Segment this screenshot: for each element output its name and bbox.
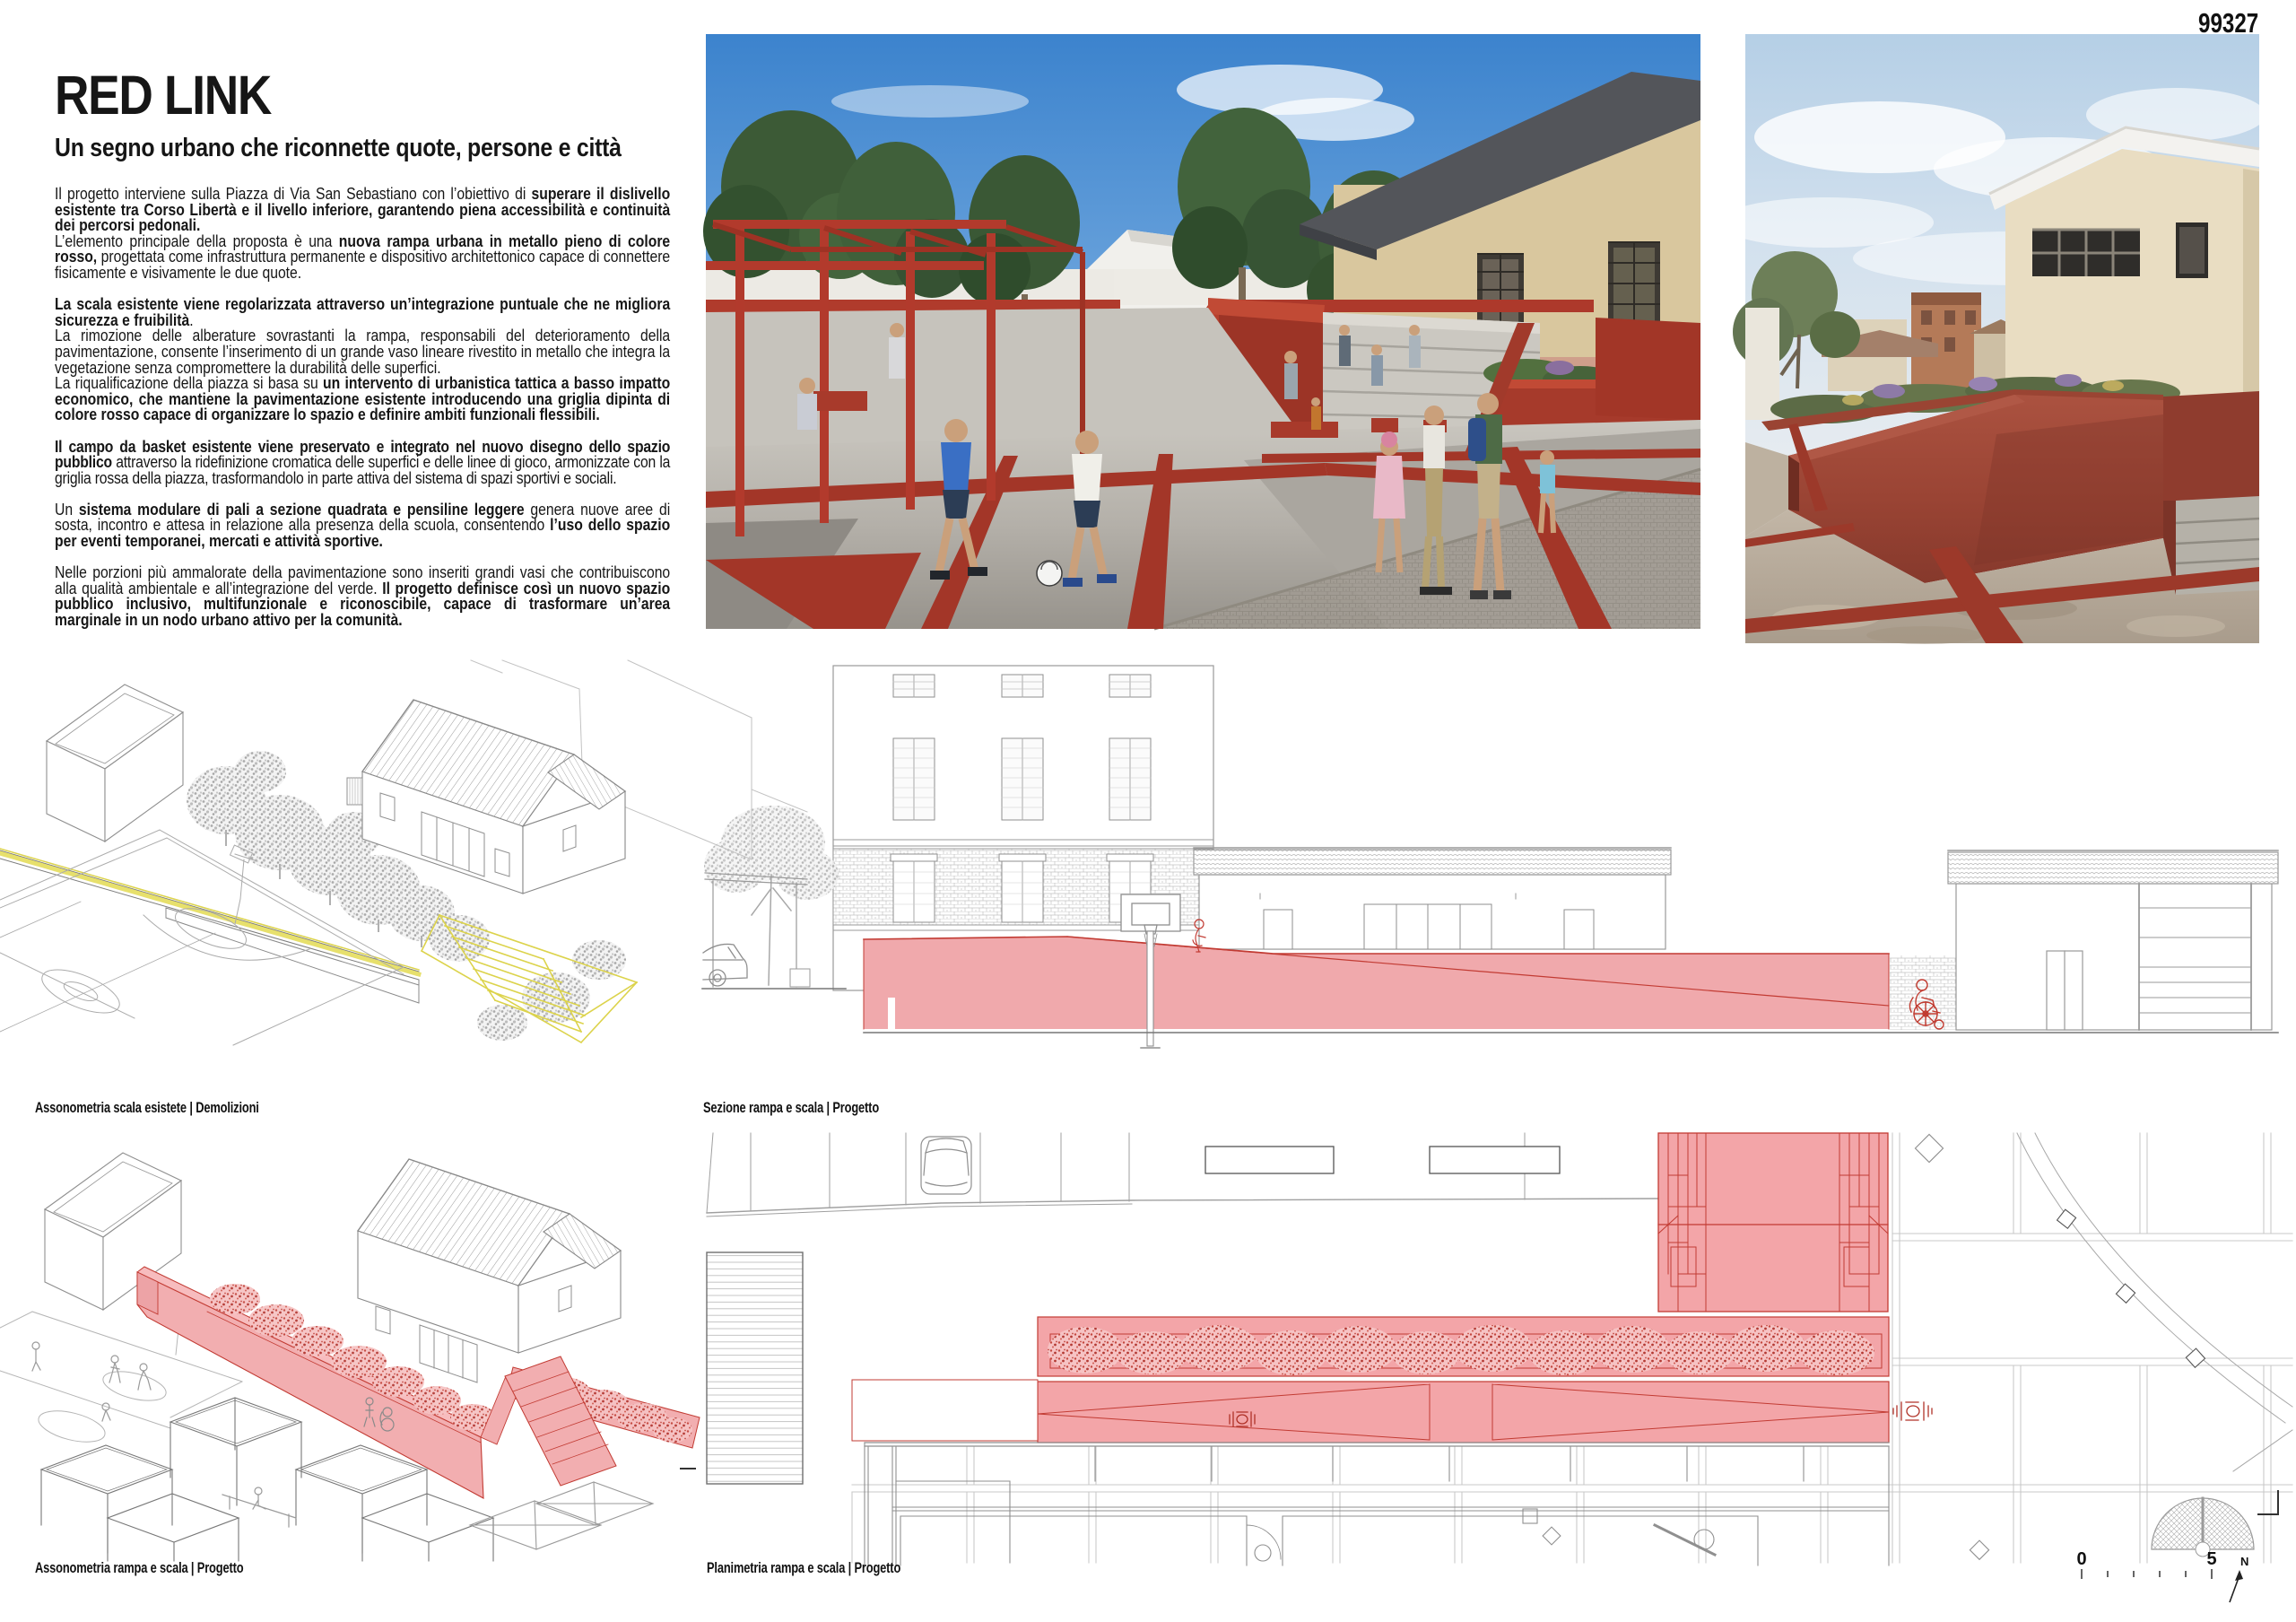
svg-text:5: 5 <box>2206 1549 2216 1569</box>
svg-text:0: 0 <box>2076 1549 2086 1569</box>
svg-text:N: N <box>2240 1555 2248 1568</box>
